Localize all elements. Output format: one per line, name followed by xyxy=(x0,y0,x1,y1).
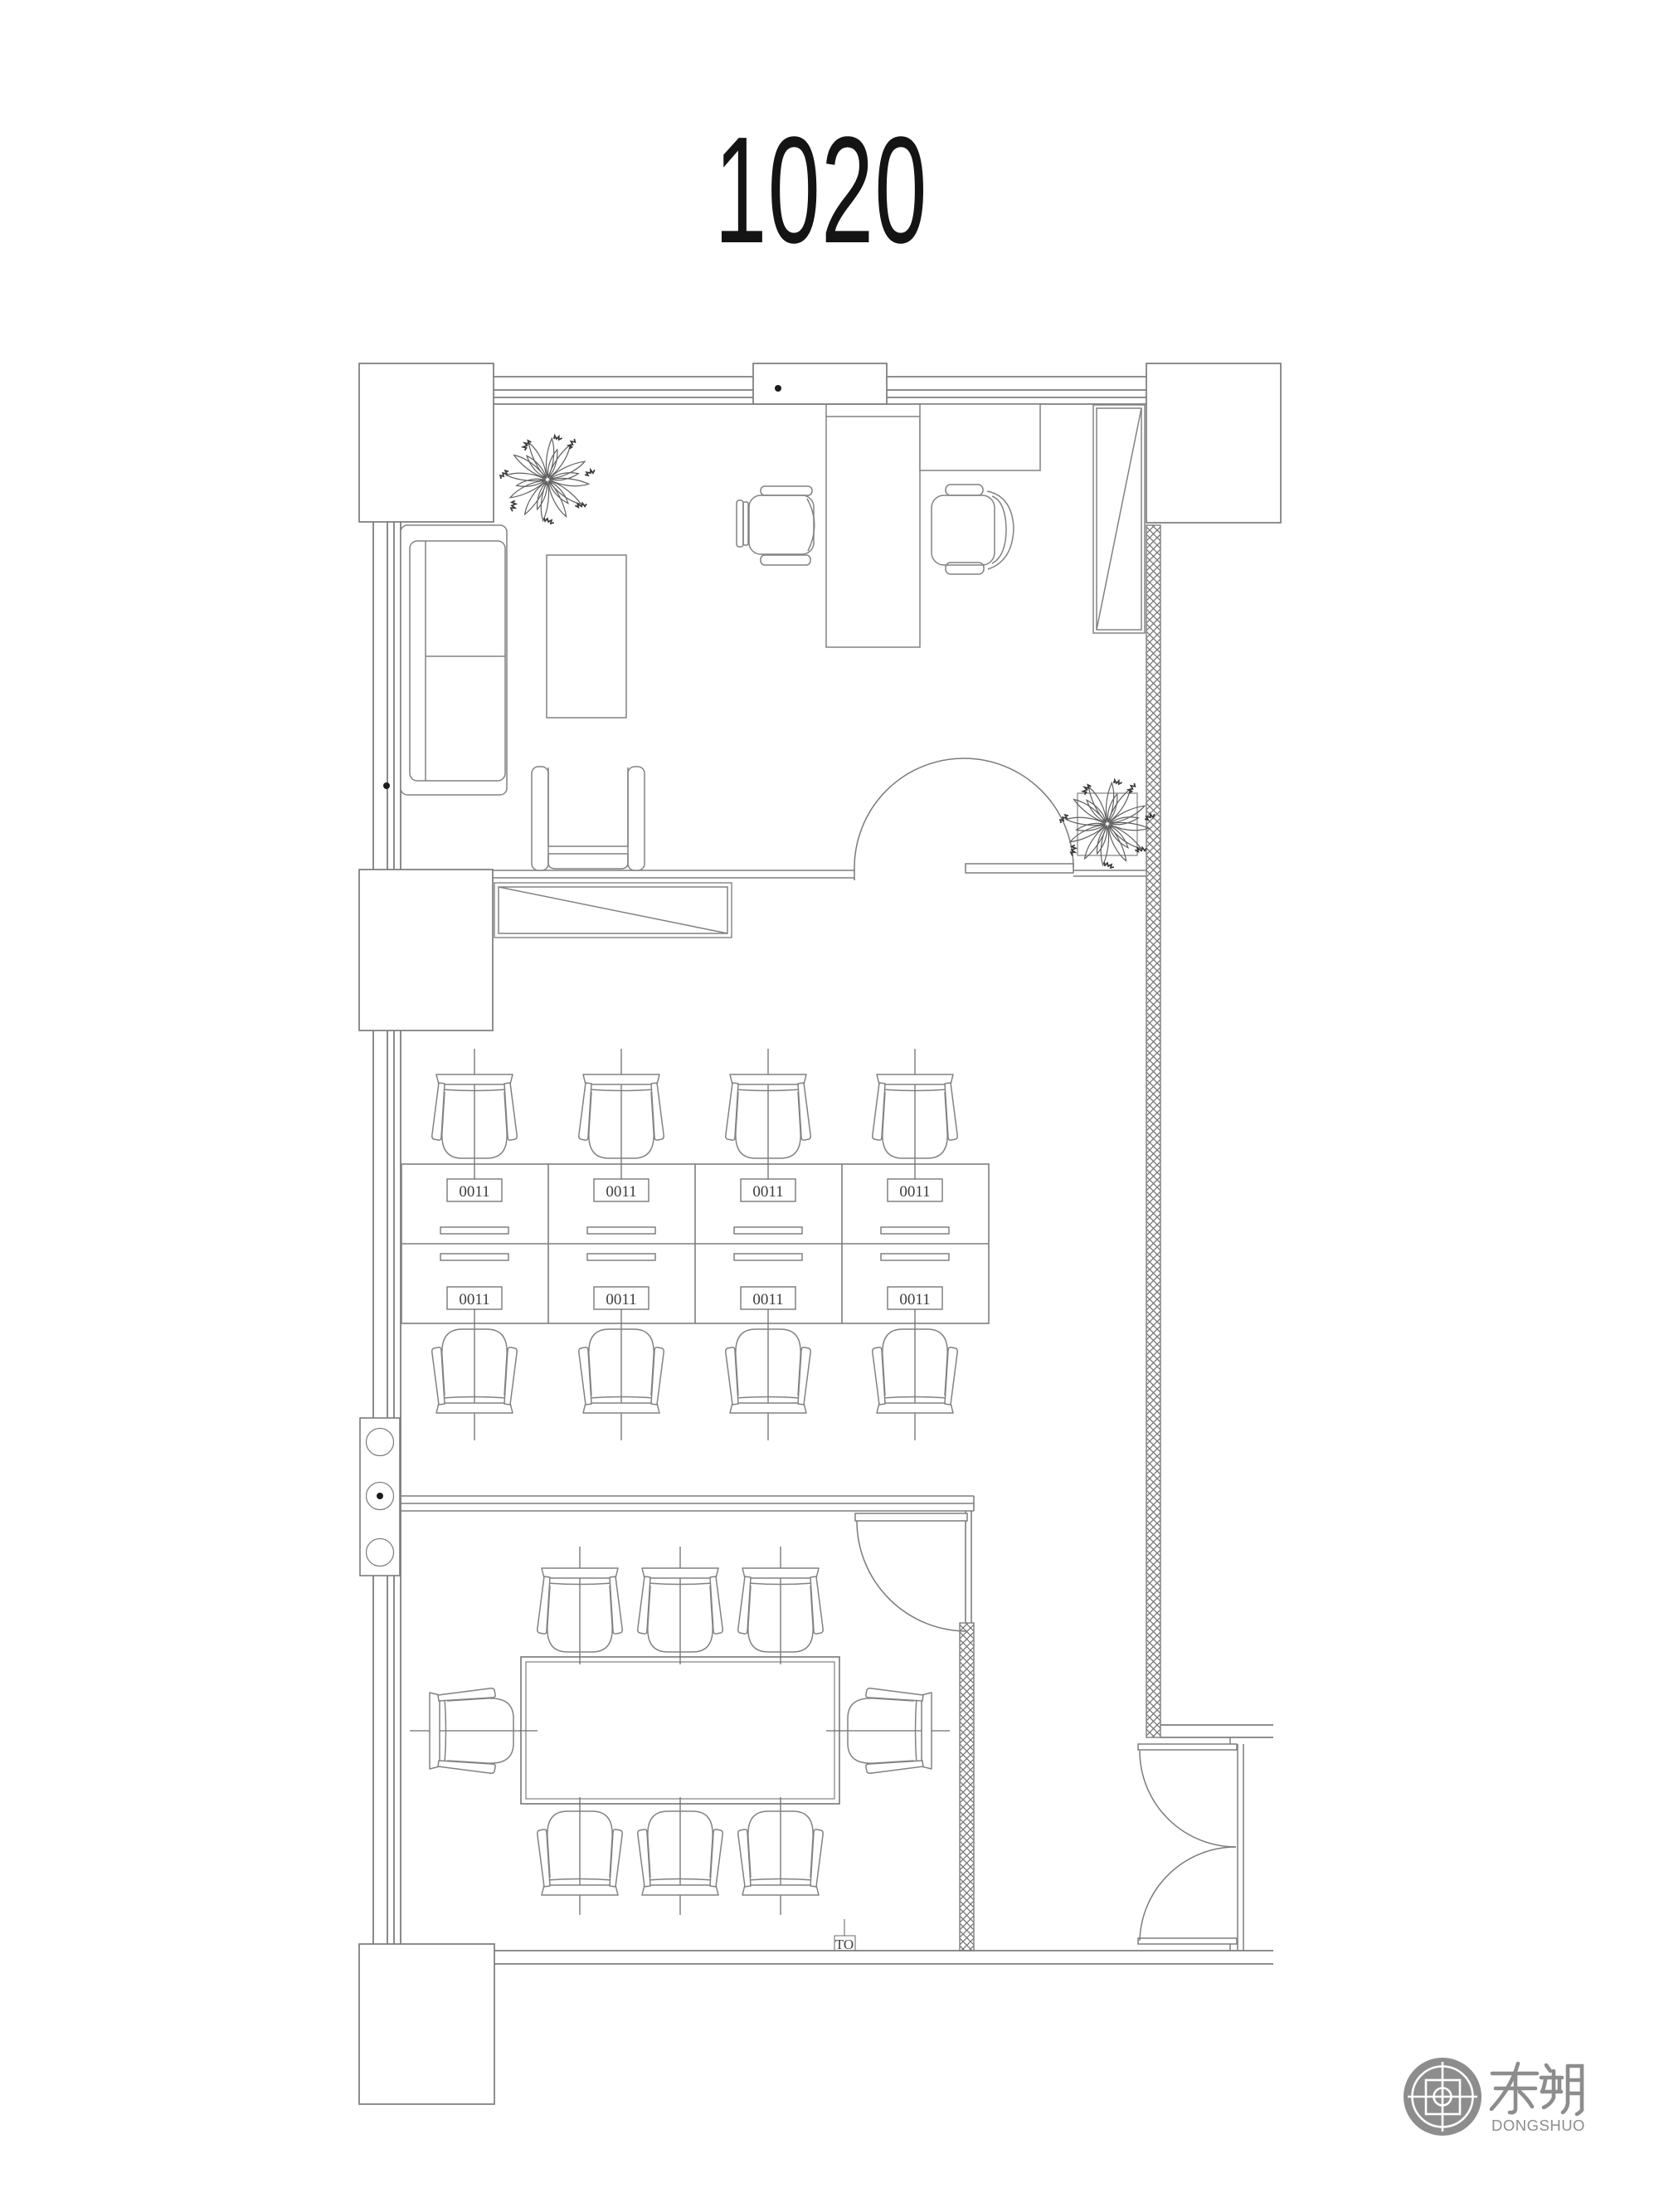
svg-text:1020: 1020 xyxy=(714,105,927,275)
svg-text:TO: TO xyxy=(835,1937,854,1952)
svg-text:DONGSHUO: DONGSHUO xyxy=(1491,2117,1585,2134)
svg-text:0011: 0011 xyxy=(606,1183,636,1201)
svg-text:0011: 0011 xyxy=(459,1183,489,1201)
svg-text:0011: 0011 xyxy=(899,1183,930,1201)
svg-text:0011: 0011 xyxy=(899,1291,930,1308)
svg-text:0011: 0011 xyxy=(752,1183,783,1201)
svg-text:0011: 0011 xyxy=(606,1291,636,1308)
svg-text:0011: 0011 xyxy=(459,1291,489,1308)
svg-text:0011: 0011 xyxy=(752,1291,783,1308)
